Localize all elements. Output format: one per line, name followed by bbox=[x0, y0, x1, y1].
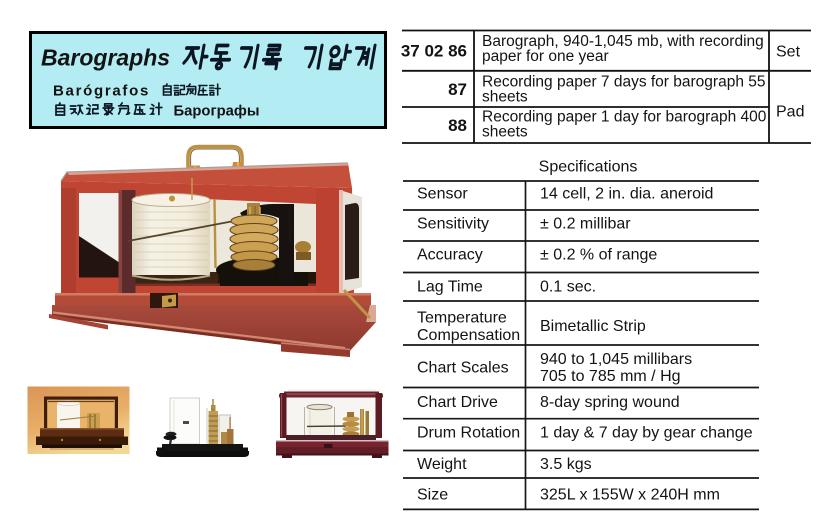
svg-text:0.1 sec.: 0.1 sec. bbox=[540, 279, 596, 296]
svg-text:87: 87 bbox=[448, 80, 467, 99]
svg-text:Drum Rotation: Drum Rotation bbox=[417, 425, 520, 442]
svg-text:Lag Time: Lag Time bbox=[417, 279, 483, 296]
svg-text:Set: Set bbox=[776, 44, 801, 61]
svg-text:Bimetallic Strip: Bimetallic Strip bbox=[540, 318, 646, 335]
svg-text:± 0.2 % of range: ± 0.2 % of range bbox=[540, 247, 657, 264]
svg-text:sheets: sheets bbox=[482, 123, 528, 140]
svg-text:88: 88 bbox=[448, 116, 467, 135]
svg-text:8-day spring wound: 8-day spring wound bbox=[540, 394, 680, 411]
svg-text:Size: Size bbox=[417, 486, 448, 503]
svg-text:Chart Scales: Chart Scales bbox=[417, 359, 509, 376]
svg-text:3.5 kgs: 3.5 kgs bbox=[540, 456, 592, 473]
svg-text:705 to 785 mm / Hg: 705 to 785 mm / Hg bbox=[540, 368, 681, 385]
svg-text:± 0.2 millibar: ± 0.2 millibar bbox=[540, 216, 631, 233]
svg-text:Specifications: Specifications bbox=[539, 159, 638, 176]
svg-text:Sensor: Sensor bbox=[417, 186, 468, 203]
svg-text:Compensation: Compensation bbox=[417, 327, 520, 344]
svg-text:Sensitivity: Sensitivity bbox=[417, 216, 489, 233]
svg-text:Барографы: Барографы bbox=[174, 104, 260, 120]
svg-text:Chart Drive: Chart Drive bbox=[417, 394, 498, 411]
svg-text:Weight: Weight bbox=[417, 456, 467, 473]
svg-text:Pad: Pad bbox=[776, 103, 804, 120]
svg-text:37 02 86: 37 02 86 bbox=[401, 42, 467, 61]
svg-text:14 cell, 2 in. dia. aneroid: 14 cell, 2 in. dia. aneroid bbox=[540, 186, 713, 203]
svg-text:Barógrafos: Barógrafos bbox=[53, 83, 150, 100]
svg-text:Accuracy: Accuracy bbox=[417, 247, 483, 264]
svg-text:325L x 155W x 240H mm: 325L x 155W x 240H mm bbox=[540, 486, 720, 503]
svg-text:1 day & 7 day by gear change: 1 day & 7 day by gear change bbox=[540, 425, 753, 442]
svg-text:940 to 1,045 millibars: 940 to 1,045 millibars bbox=[540, 351, 692, 368]
svg-text:sheets: sheets bbox=[482, 88, 528, 105]
svg-text:Temperature: Temperature bbox=[417, 310, 507, 327]
svg-text:Barographs: Barographs bbox=[41, 45, 170, 71]
svg-text:paper for one year: paper for one year bbox=[482, 48, 609, 65]
